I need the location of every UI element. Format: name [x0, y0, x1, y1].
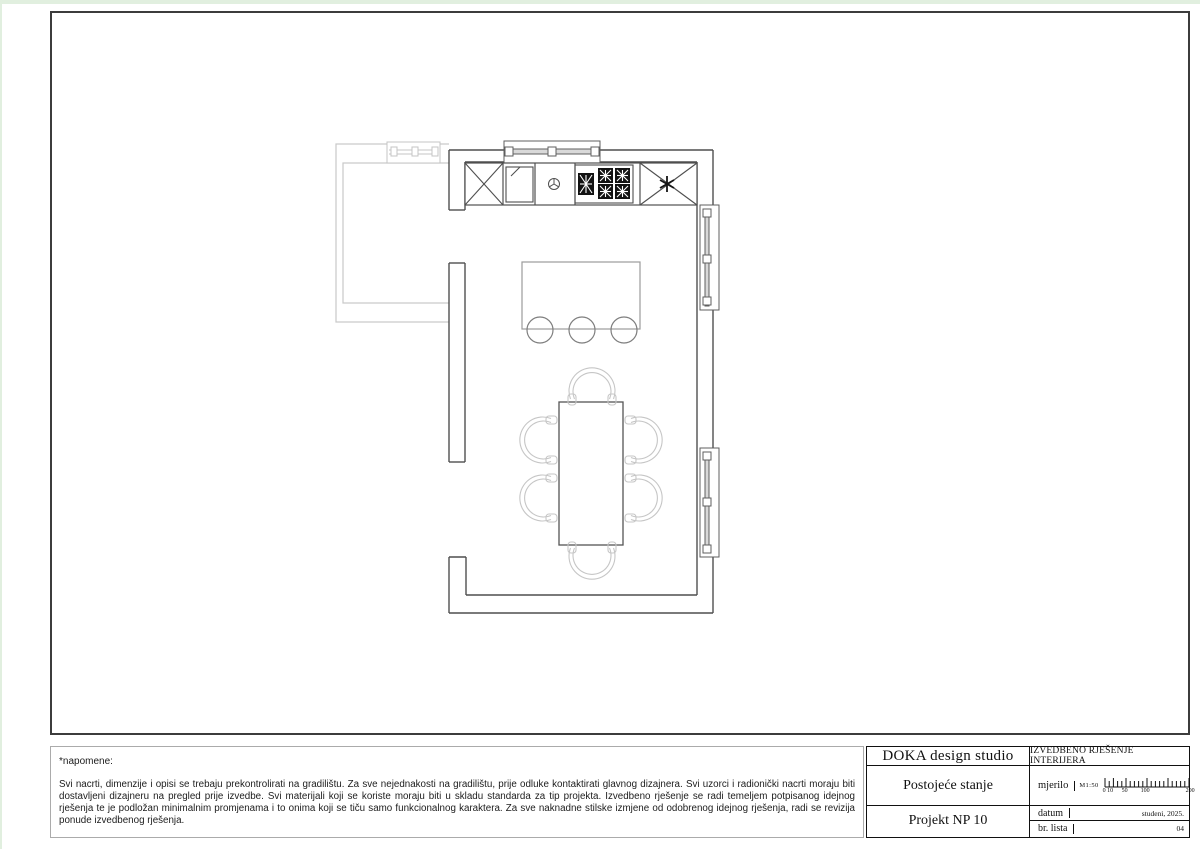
notes-box: *napomene: Svi nacrti, dimenzije i opisi… [50, 746, 864, 838]
dining-chair [520, 416, 557, 464]
scale-label: mjerilo [1038, 780, 1068, 791]
dining-chair [625, 474, 662, 522]
project-name: Projekt NP 10 [867, 806, 1029, 836]
scale-tick-0: 0 10 [1103, 788, 1114, 794]
kitchen-island [522, 262, 640, 329]
dining-chair [568, 542, 616, 579]
scale-tick-200: 200 [1186, 788, 1195, 794]
date-row: datum studeni, 2025. [1030, 806, 1189, 821]
notes-title: *napomene: [59, 756, 855, 767]
document-type: IZVEDBENO RJEŠENJE INTERIJERA [1030, 747, 1189, 766]
bar-stool [569, 317, 595, 343]
window-top [504, 141, 600, 163]
bar-stools [527, 317, 637, 343]
scale-tick-100: 100 [1141, 788, 1150, 794]
title-block-right-column: IZVEDBENO RJEŠENJE INTERIJERA mjerilo M1… [1030, 747, 1189, 837]
scale-row: mjerilo M1:50 [1030, 766, 1189, 806]
date-label: datum [1038, 808, 1063, 819]
drawing-sheet: { "page": { "edge_color": "#e1efdf", "sh… [0, 0, 1200, 849]
divider [1074, 781, 1075, 791]
divider [1073, 824, 1074, 834]
sheet-value: 04 [1177, 824, 1185, 833]
studio-name: DOKA design studio [867, 747, 1029, 766]
divider [1069, 808, 1070, 818]
adjacent-room-window [387, 142, 440, 163]
dining-chair [625, 416, 662, 464]
bar-stool [611, 317, 637, 343]
floor-plan [330, 135, 725, 620]
notes-body: Svi nacrti, dimenzije i opisi se trebaju… [59, 779, 855, 827]
sheet-number-row: br. lista 04 [1030, 821, 1189, 836]
adjacent-room-outline [336, 144, 449, 322]
page-edge-top [0, 0, 1200, 4]
title-block: DOKA design studio Postojeće stanje Proj… [866, 746, 1190, 838]
window-right-lower [700, 448, 719, 557]
scale-ruler: 0 10 50 100 200 [1103, 775, 1195, 797]
scale-value: M1:50 [1079, 782, 1098, 789]
dining-chair [520, 474, 557, 522]
page-edge-left [0, 0, 2, 849]
dining-chair [568, 368, 616, 405]
drawing-title: Postojeće stanje [867, 766, 1029, 806]
bar-stool [527, 317, 553, 343]
window-right-upper [700, 205, 719, 310]
date-value: studeni, 2025. [1142, 809, 1184, 818]
scale-tick-50: 50 [1122, 788, 1128, 794]
scale-ruler-ticks [1103, 776, 1195, 788]
dining-table [559, 402, 623, 545]
title-block-left-column: DOKA design studio Postojeće stanje Proj… [867, 747, 1030, 837]
sheet-label: br. lista [1038, 823, 1067, 834]
